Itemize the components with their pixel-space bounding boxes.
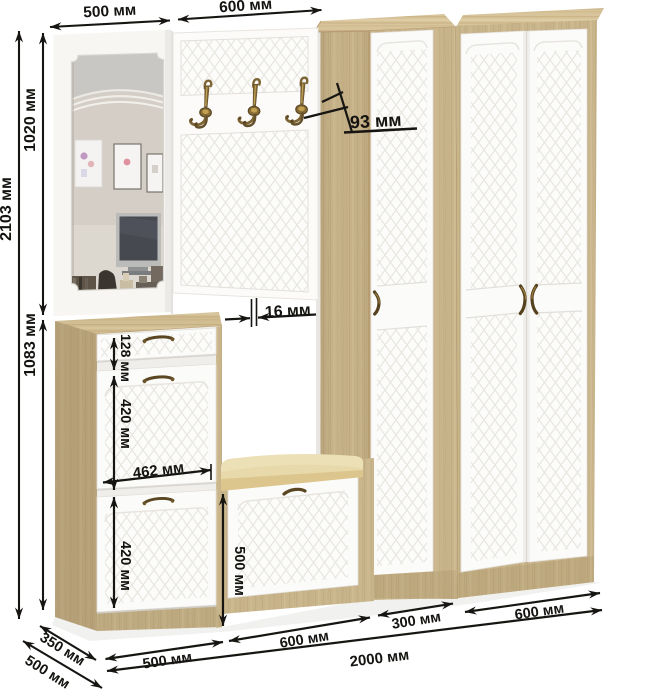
svg-text:93 мм: 93 мм (349, 110, 402, 133)
svg-text:500 мм: 500 мм (231, 546, 247, 596)
svg-text:1083 мм: 1083 мм (22, 313, 39, 377)
svg-text:2000 мм: 2000 мм (349, 646, 410, 670)
svg-text:2103 мм: 2103 мм (0, 177, 15, 241)
svg-text:16 мм: 16 мм (264, 302, 311, 321)
svg-text:420 мм: 420 мм (117, 399, 133, 449)
svg-text:420 мм: 420 мм (117, 541, 133, 591)
svg-text:1020 мм: 1020 мм (22, 88, 39, 152)
svg-text:500 мм: 500 мм (83, 2, 137, 22)
svg-text:128 мм: 128 мм (118, 334, 134, 382)
